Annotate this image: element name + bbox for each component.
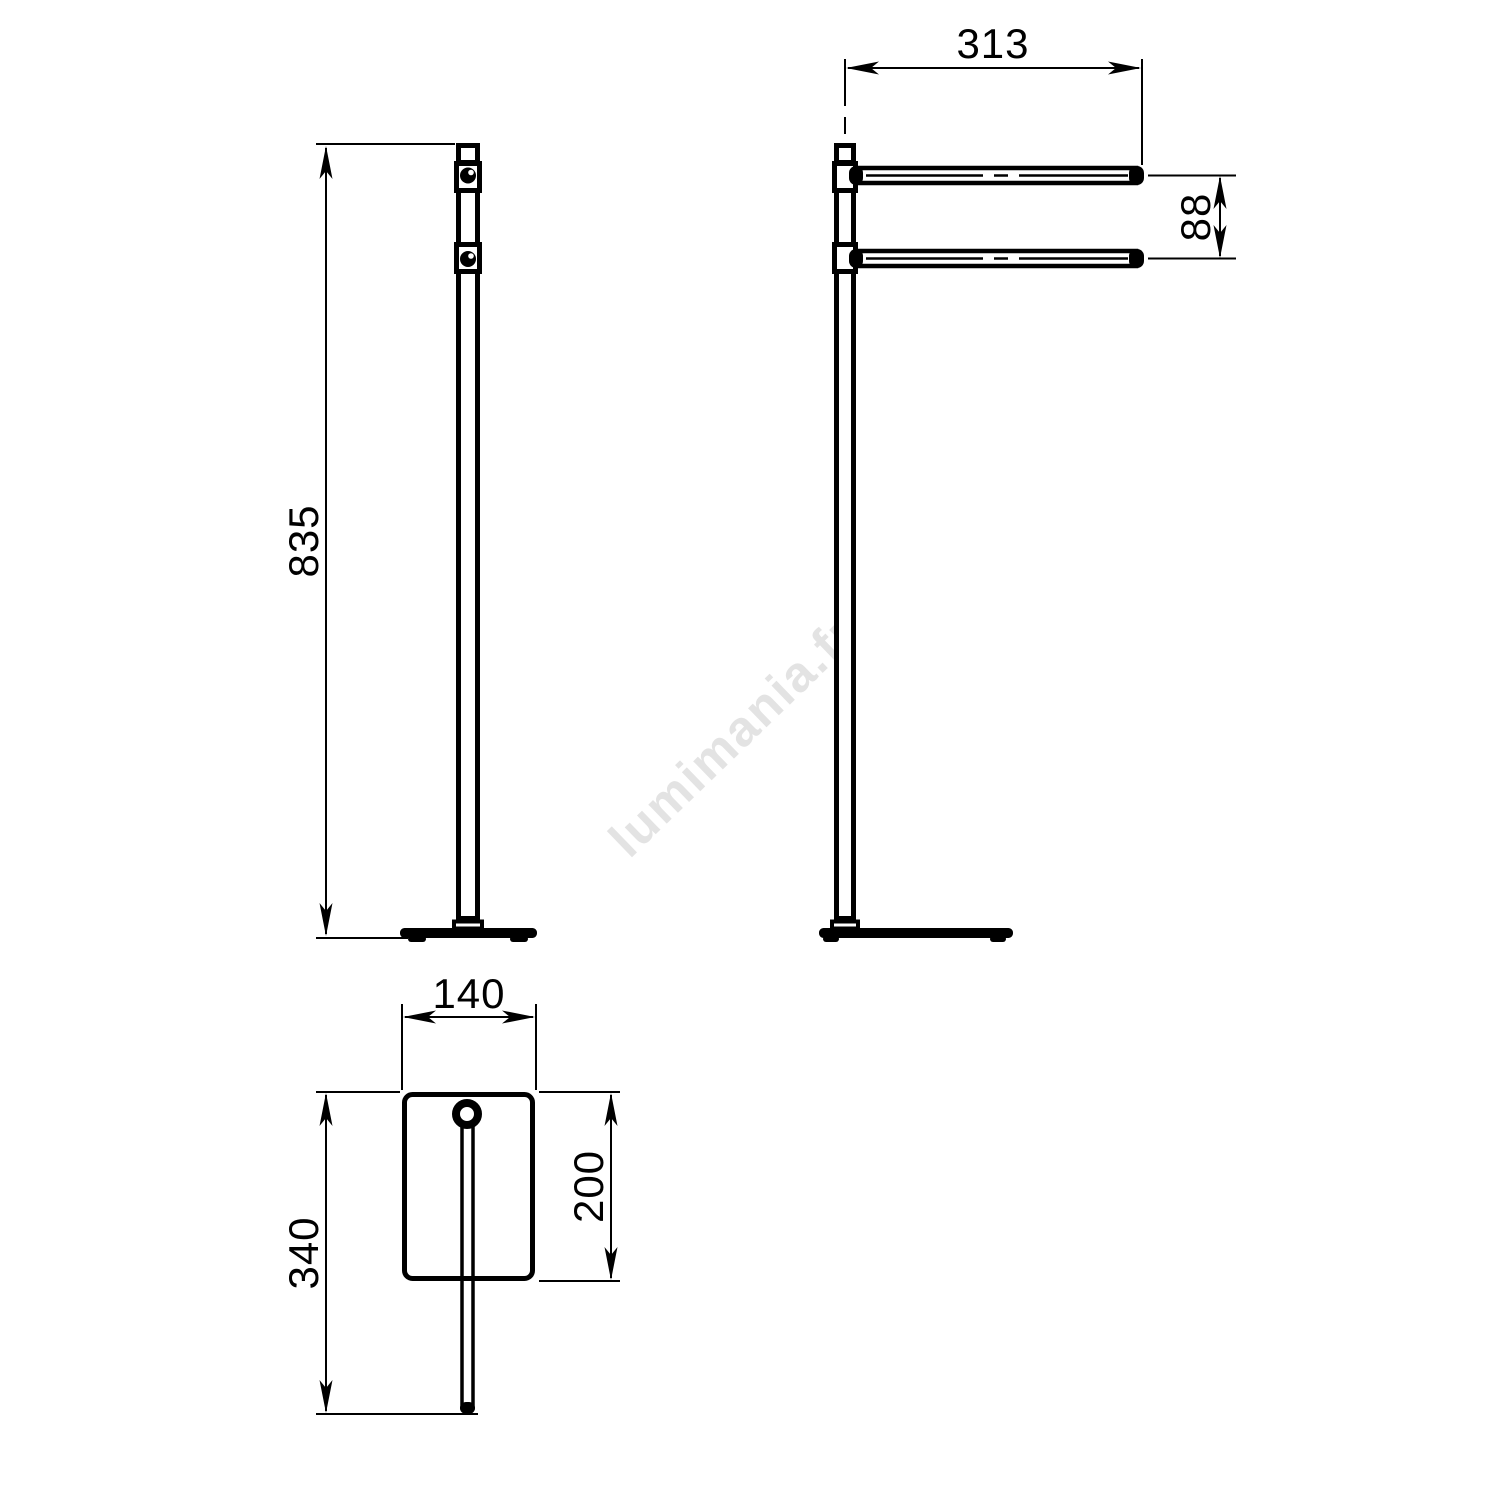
overall-depth-dimension-label: 340 xyxy=(280,1216,327,1289)
base-width-dimension: 140 xyxy=(402,970,536,1090)
towel-stand-technical-drawing: lumimania.fr xyxy=(0,0,1500,1500)
drawing-page: lumimania.fr xyxy=(0,0,1500,1500)
side-view: 313 88 xyxy=(822,20,1237,942)
height-dimension: 835 xyxy=(280,144,455,938)
bar-length-dimension-label: 313 xyxy=(956,20,1029,67)
watermark: lumimania.fr xyxy=(598,604,868,867)
base-width-dimension-label: 140 xyxy=(432,970,505,1017)
side-base-plate xyxy=(822,931,1011,943)
bar-length-dimension: 313 xyxy=(845,20,1142,165)
bar-spacing-dimension: 88 xyxy=(1148,176,1236,259)
front-view: 835 xyxy=(280,144,535,942)
plan-view: 140 200 340 xyxy=(280,970,620,1414)
base-depth-dimension: 200 xyxy=(539,1092,620,1281)
side-left-foot xyxy=(823,936,839,942)
base-depth-dimension-label: 200 xyxy=(565,1150,612,1223)
overall-depth-dimension: 340 xyxy=(280,1092,478,1414)
front-post xyxy=(454,146,482,929)
front-base-plate xyxy=(403,931,535,943)
front-right-foot xyxy=(510,936,528,942)
front-upper-screw xyxy=(460,168,476,184)
front-collar xyxy=(454,922,482,929)
height-dimension-label: 835 xyxy=(280,504,327,577)
side-collar xyxy=(832,922,858,929)
upper-towel-bar xyxy=(849,166,1144,185)
plan-post-section xyxy=(456,1103,478,1125)
lower-towel-bar xyxy=(849,249,1144,268)
side-right-foot xyxy=(990,936,1006,942)
front-left-foot xyxy=(408,936,426,942)
plan-towel-bar xyxy=(460,1120,475,1414)
bar-spacing-dimension-label: 88 xyxy=(1172,193,1219,242)
front-lower-screw xyxy=(460,251,476,267)
